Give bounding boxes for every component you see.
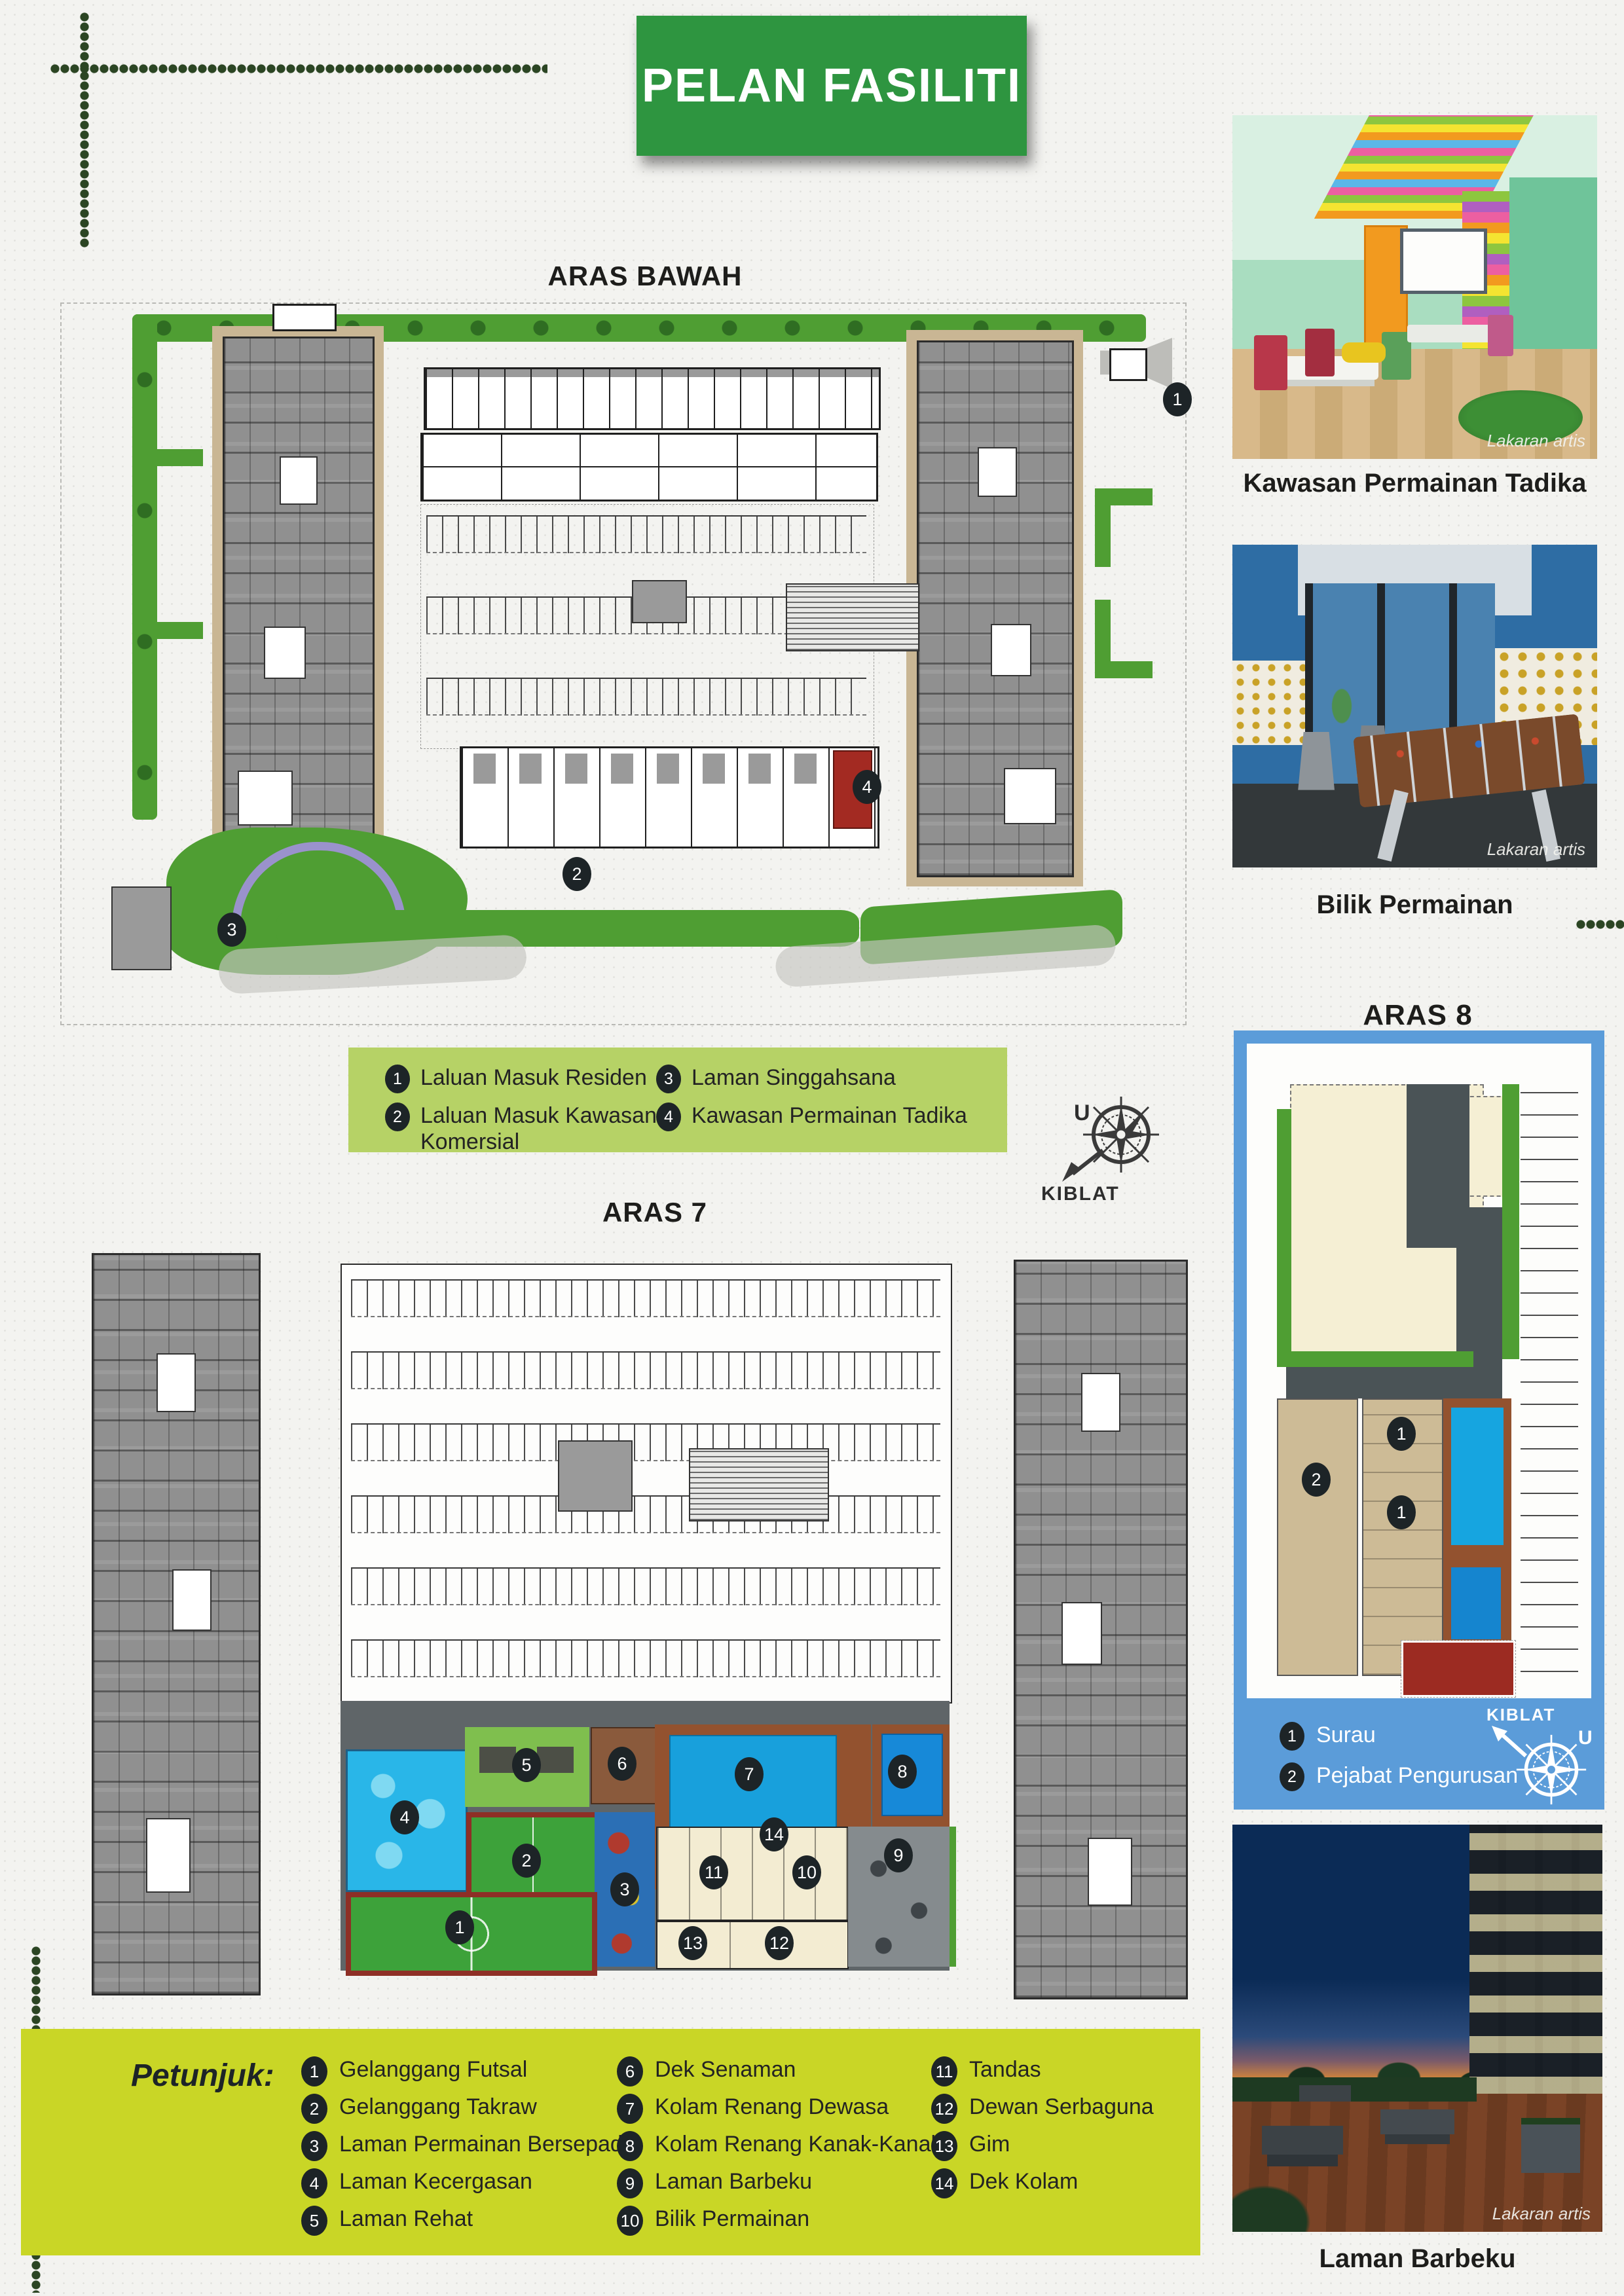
plan-marker-2: 2 <box>563 857 591 891</box>
legend-entry: 6 Dek Senaman <box>617 2056 796 2086</box>
legend-label: Kolam Renang Dewasa <box>655 2094 889 2120</box>
block-core <box>172 1569 212 1631</box>
toy-submarine <box>1342 342 1386 363</box>
plan-marker-12: 12 <box>765 1926 794 1960</box>
barbeku-photo: Lakaran artis <box>1232 1825 1602 2232</box>
block-core <box>1004 768 1056 824</box>
legend-number: 6 <box>617 2056 643 2086</box>
plant <box>1331 687 1352 725</box>
barbeku-caption: Laman Barbeku <box>1232 2244 1602 2274</box>
aras7-tower-right <box>1014 1260 1188 1999</box>
legend-label: Tandas <box>969 2056 1041 2083</box>
legend-number: 5 <box>301 2206 327 2236</box>
legend-entry: 14 Dek Kolam <box>931 2168 1078 2198</box>
legend-number: 11 <box>931 2056 957 2086</box>
aras7-tower-left <box>92 1253 261 1995</box>
aras8-landscape-left <box>1277 1109 1291 1366</box>
braid-decoration-top <box>50 60 547 77</box>
plan-marker-2: 2 <box>512 1844 541 1878</box>
aras7-plan: 1 2 3 4 5 6 7 8 9 10 11 12 13 14 <box>85 1244 1192 1997</box>
legend-label: Surau <box>1316 1722 1376 1748</box>
residential-block-right-units <box>917 340 1074 877</box>
legend-entry: 1 Gelanggang Futsal <box>301 2056 527 2086</box>
aras7-heading: ARAS 7 <box>524 1197 786 1228</box>
residential-block-left-units <box>223 337 375 877</box>
parking-field <box>420 504 874 749</box>
legend-entry: 2 Laluan Masuk Kawasan Komersial <box>385 1102 663 1155</box>
planter-box <box>1521 2118 1580 2174</box>
plan-marker-13: 13 <box>678 1926 707 1960</box>
parking-stalls <box>426 678 866 716</box>
legend-number: 2 <box>301 2094 327 2124</box>
legend-label: Gelanggang Futsal <box>339 2056 527 2083</box>
photo-watermark: Lakaran artis <box>1487 839 1585 860</box>
block-core <box>280 456 318 505</box>
tadika-caption: Kawasan Permainan Tadika <box>1232 469 1597 498</box>
bbq-bench <box>1299 2085 1351 2102</box>
plan-marker-9: 9 <box>884 1838 913 1872</box>
legend-number: 9 <box>617 2168 643 2198</box>
landscape-band-left <box>132 314 157 820</box>
legend-number: 4 <box>301 2168 327 2198</box>
legend-label: Laman Singgahsana <box>692 1065 980 1091</box>
kids-chair-red <box>1305 329 1335 377</box>
legend-entry: 4 Kawasan Permainan Tadika <box>656 1102 980 1131</box>
photo-watermark: Lakaran artis <box>1492 2204 1591 2224</box>
legend-entry: 3 Laman Permainan Bersepadu <box>301 2131 635 2161</box>
legend-number: 3 <box>301 2131 327 2161</box>
plan-marker-1: 1 <box>1163 382 1192 416</box>
legend-number: 10 <box>617 2206 643 2236</box>
apartment-tower <box>1469 1825 1602 2094</box>
entrance-guard-house <box>1109 348 1147 381</box>
aras8-pool-large <box>1451 1408 1504 1545</box>
legend-number: 1 <box>301 2056 327 2086</box>
shop-row-south <box>460 746 879 848</box>
car-ramp <box>786 583 919 651</box>
parking-stalls <box>426 515 866 553</box>
plan-marker-7: 7 <box>735 1757 764 1791</box>
pergola <box>479 1747 516 1773</box>
aras8-landscape-right <box>1502 1084 1519 1359</box>
kiblat-arrow-icon <box>1061 1146 1107 1186</box>
legend-label: Laluan Masuk Kawasan Komersial <box>420 1102 663 1155</box>
residential-block-left <box>212 326 384 886</box>
compass-aras8: KIBLAT U <box>1486 1705 1598 1810</box>
stool <box>1298 732 1335 790</box>
lift-core <box>632 580 687 623</box>
legend-number: 3 <box>656 1065 681 1093</box>
aras8-legend-entry: 1 Surau <box>1280 1722 1376 1751</box>
compass-qibla-label: KIBLAT <box>1041 1183 1120 1205</box>
lift-core <box>558 1440 633 1512</box>
brochure-page: PELAN FASILITI ARAS BAWAH <box>0 0 1624 2296</box>
planter-hedge <box>1232 2077 1477 2102</box>
kids-chair-green <box>1382 332 1411 380</box>
plan-marker-2: 2 <box>1302 1463 1331 1497</box>
aras8-legend-entry: 2 Pejabat Pengurusan <box>1280 1762 1518 1791</box>
block-core <box>264 627 306 679</box>
block-core <box>1061 1602 1102 1665</box>
legend-number: 4 <box>656 1102 681 1131</box>
plan-marker-11: 11 <box>699 1855 728 1889</box>
whiteboard <box>1400 228 1487 293</box>
legend-label: Dewan Serbaguna <box>969 2094 1154 2120</box>
legend-entry: 11 Tandas <box>931 2056 1041 2086</box>
block-core <box>157 1353 196 1412</box>
legend-number: 1 <box>1280 1722 1304 1751</box>
parking-stalls <box>351 1423 940 1461</box>
plan-marker-4: 4 <box>390 1800 419 1834</box>
landscape-arm-2 <box>156 622 203 639</box>
legend-number: 2 <box>385 1102 410 1131</box>
plan-marker-6: 6 <box>608 1747 637 1781</box>
aras-bawah-heading: ARAS BAWAH <box>504 261 786 292</box>
legend-label: Laman Permainan Bersepadu <box>339 2131 635 2157</box>
compass-qibla-label: KIBLAT <box>1486 1705 1555 1725</box>
plan-marker-1: 1 <box>1387 1417 1416 1451</box>
aras8-landscape-mid <box>1277 1351 1473 1367</box>
plan-marker-1b: 1 <box>1387 1495 1416 1529</box>
legend-entry: 13 Gim <box>931 2131 1010 2161</box>
plan-marker-8: 8 <box>888 1755 917 1789</box>
legend-entry: 5 Laman Rehat <box>301 2206 473 2236</box>
legend-label: Bilik Permainan <box>655 2206 809 2232</box>
petunjuk-heading: Petunjuk: <box>131 2058 274 2094</box>
compass-aras-bawah: U KIBLAT <box>1041 1084 1192 1214</box>
legend-number: 1 <box>385 1065 410 1093</box>
block-core <box>978 447 1017 497</box>
photo-watermark: Lakaran artis <box>1487 431 1585 451</box>
residential-block-right <box>906 330 1083 886</box>
hedge-right-2 <box>1095 488 1111 567</box>
aras8-pool-small <box>1451 1567 1501 1639</box>
hedge-right-4 <box>1095 661 1153 678</box>
plan-marker-10: 10 <box>792 1855 821 1889</box>
title-banner: PELAN FASILITI <box>637 16 1027 156</box>
aras8-office-room <box>1277 1398 1358 1676</box>
legend-entry: 4 Laman Kecergasan <box>301 2168 532 2198</box>
aras8-plan-area: 2 1 1 <box>1247 1044 1591 1698</box>
landscape-arm-1 <box>156 449 203 466</box>
bus-bay <box>111 886 172 970</box>
block-core <box>146 1818 191 1893</box>
legend-label: Dek Senaman <box>655 2056 796 2083</box>
games-room-caption: Bilik Permainan <box>1232 890 1597 920</box>
parking-stalls <box>351 1567 940 1605</box>
guard-house-left <box>272 304 337 331</box>
legend-entry: 2 Gelanggang Takraw <box>301 2094 537 2124</box>
commercial-row-top <box>424 367 881 430</box>
legend-entry: 3 Laman Singgahsana <box>656 1065 980 1093</box>
aras-bawah-legend: 1 Laluan Masuk Residen 2 Laluan Masuk Ka… <box>348 1048 1007 1152</box>
legend-number: 14 <box>931 2168 957 2198</box>
parking-stalls <box>351 1639 940 1677</box>
legend-entry: 7 Kolam Renang Dewasa <box>617 2094 889 2124</box>
legend-number: 2 <box>1280 1762 1304 1791</box>
legend-number: 7 <box>617 2094 643 2124</box>
block-core <box>238 771 293 826</box>
landscape-strip-south <box>276 910 859 947</box>
legend-label: Dek Kolam <box>969 2168 1078 2195</box>
legend-number: 13 <box>931 2131 957 2161</box>
legend-entry: 10 Bilik Permainan <box>617 2206 809 2236</box>
aras8-corridor-horizontal <box>1286 1366 1502 1398</box>
legend-label: Laman Rehat <box>339 2206 473 2232</box>
parking-stalls <box>351 1495 940 1533</box>
compass-rose-icon <box>1515 1734 1587 1806</box>
shrub <box>1232 2183 1314 2232</box>
aras7-parking-deck <box>341 1264 952 1704</box>
aras8-heading: ARAS 8 <box>1297 999 1539 1032</box>
commercial-row-mid <box>420 433 878 501</box>
legend-label: Gim <box>969 2131 1010 2157</box>
legend-label: Kawasan Permainan Tadika <box>692 1102 980 1129</box>
page-title: PELAN FASILITI <box>642 59 1022 113</box>
parking-stalls <box>351 1279 940 1317</box>
plan-marker-4: 4 <box>853 770 881 804</box>
plan-marker-3: 3 <box>217 913 246 947</box>
aras-bawah-plan: 1 2 3 4 <box>60 302 1187 1025</box>
block-core <box>1081 1373 1120 1432</box>
legend-label: Kolam Renang Kanak-Kanak <box>655 2131 942 2157</box>
plan-marker-3: 3 <box>610 1872 639 1906</box>
kids-chair-pink <box>1488 315 1513 356</box>
legend-number: 8 <box>617 2131 643 2161</box>
block-core <box>991 624 1031 676</box>
parking-stalls <box>351 1351 940 1389</box>
legend-entry: 9 Laman Barbeku <box>617 2168 812 2198</box>
leaf-wall-art <box>1232 661 1305 744</box>
aras8-red-deck <box>1401 1641 1515 1697</box>
legend-entry: 1 Laluan Masuk Residen <box>385 1065 663 1093</box>
facility-deck: 1 2 3 4 5 6 7 8 9 10 11 12 13 14 <box>341 1701 950 1971</box>
aras8-parking-column <box>1521 1083 1578 1672</box>
plan-marker-5: 5 <box>512 1748 541 1782</box>
legend-label: Laman Kecergasan <box>339 2168 532 2195</box>
petunjuk-legend: Petunjuk: 1 Gelanggang Futsal 2 Gelangga… <box>21 2029 1200 2255</box>
legend-entry: 12 Dewan Serbaguna <box>931 2094 1154 2124</box>
block-core <box>1088 1838 1132 1906</box>
kids-chair-red <box>1254 335 1287 390</box>
shopfront-stubs <box>462 754 877 784</box>
games-room-photo: Lakaran artis <box>1232 545 1597 867</box>
plan-marker-14: 14 <box>760 1817 788 1851</box>
bbq-table <box>1380 2109 1454 2134</box>
legend-label: Gelanggang Takraw <box>339 2094 537 2120</box>
aras8-panel: 2 1 1 1 Surau 2 Pejabat Pengurusan KIBLA… <box>1234 1030 1604 1810</box>
car-ramp <box>689 1448 829 1522</box>
legend-label: Laluan Masuk Residen <box>420 1065 663 1091</box>
plan-marker-1: 1 <box>445 1910 474 1944</box>
legend-number: 12 <box>931 2094 957 2124</box>
bbq-table <box>1262 2126 1343 2155</box>
legend-label: Laman Barbeku <box>655 2168 812 2195</box>
tadika-photo: Lakaran artis <box>1232 115 1597 459</box>
pergola <box>537 1747 574 1773</box>
legend-entry: 8 Kolam Renang Kanak-Kanak <box>617 2131 942 2161</box>
braid-decoration-topleft <box>76 12 93 247</box>
